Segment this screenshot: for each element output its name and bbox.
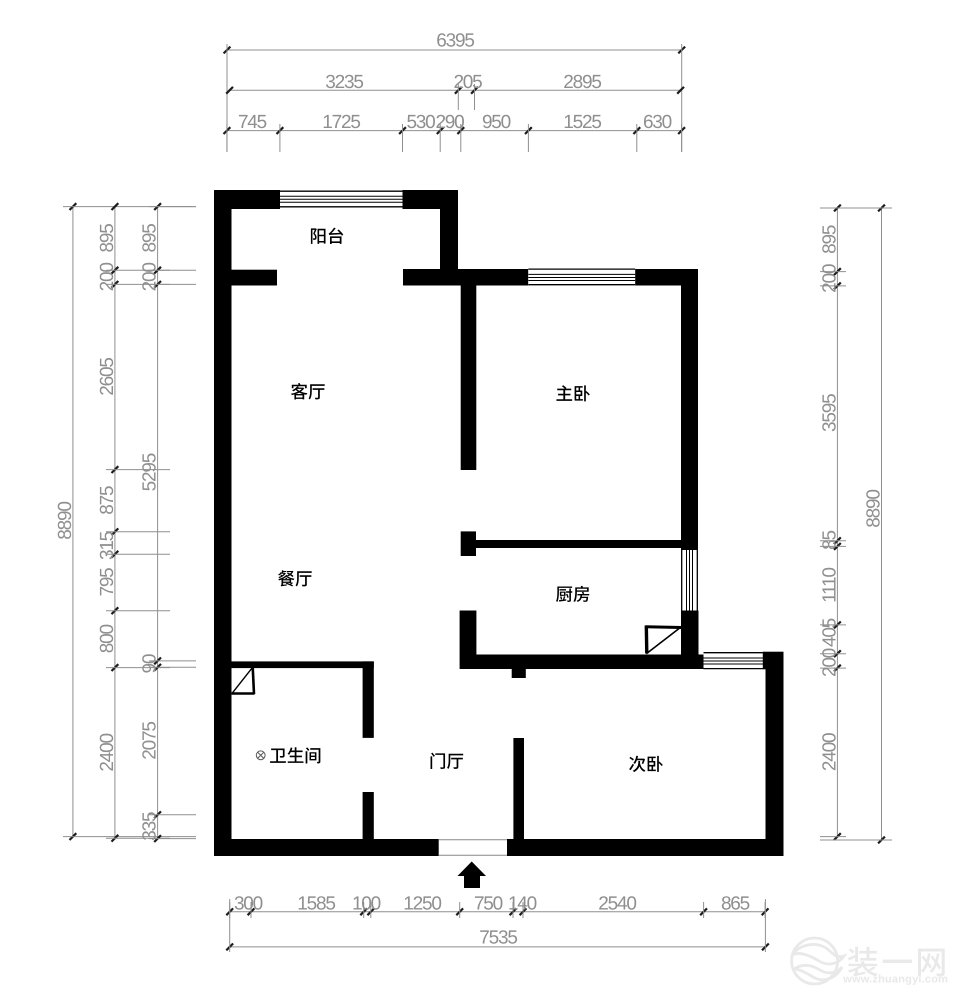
svg-text:3595: 3595 <box>820 394 841 432</box>
svg-text:335: 335 <box>140 812 161 841</box>
svg-text:200: 200 <box>97 263 118 292</box>
svg-text:895: 895 <box>820 225 841 254</box>
svg-text:1110: 1110 <box>820 568 841 603</box>
svg-text:6395: 6395 <box>436 31 474 52</box>
svg-text:795: 795 <box>97 568 118 597</box>
svg-text:www.zhuangyi.com: www.zhuangyi.com <box>842 974 948 986</box>
svg-text:895: 895 <box>97 224 118 253</box>
svg-text:1585: 1585 <box>297 893 335 914</box>
svg-text:530: 530 <box>406 112 435 133</box>
svg-text:8890: 8890 <box>864 490 885 528</box>
svg-text:5295: 5295 <box>140 453 161 491</box>
svg-text:140: 140 <box>508 893 537 914</box>
svg-text:950: 950 <box>482 112 511 133</box>
svg-text:200: 200 <box>140 263 161 292</box>
svg-text:7535: 7535 <box>479 928 517 949</box>
svg-text:200: 200 <box>820 648 841 677</box>
svg-text:2075: 2075 <box>140 722 161 760</box>
svg-text:300: 300 <box>234 893 263 914</box>
svg-text:8890: 8890 <box>55 502 76 540</box>
svg-text:750: 750 <box>474 893 503 914</box>
svg-text:895: 895 <box>140 224 161 253</box>
svg-text:745: 745 <box>238 112 267 133</box>
svg-text:1525: 1525 <box>563 112 601 133</box>
svg-text:2540: 2540 <box>598 893 636 914</box>
svg-text:865: 865 <box>721 893 750 914</box>
svg-text:2400: 2400 <box>97 734 118 772</box>
svg-text:200: 200 <box>820 264 841 293</box>
svg-text:1725: 1725 <box>322 112 360 133</box>
svg-text:630: 630 <box>643 112 672 133</box>
svg-text:85: 85 <box>820 531 841 550</box>
svg-text:875: 875 <box>97 486 118 515</box>
svg-text:1250: 1250 <box>403 893 441 914</box>
svg-text:315: 315 <box>97 531 118 560</box>
svg-text:290: 290 <box>435 112 464 133</box>
svg-text:2400: 2400 <box>820 733 841 771</box>
svg-text:205: 205 <box>453 72 482 93</box>
svg-text:800: 800 <box>97 625 118 654</box>
svg-text:3235: 3235 <box>325 72 363 93</box>
svg-text:405: 405 <box>820 618 841 647</box>
svg-text:2605: 2605 <box>97 358 118 396</box>
svg-text:2895: 2895 <box>563 72 601 93</box>
svg-text:100: 100 <box>352 893 381 914</box>
svg-text:90: 90 <box>140 654 161 673</box>
